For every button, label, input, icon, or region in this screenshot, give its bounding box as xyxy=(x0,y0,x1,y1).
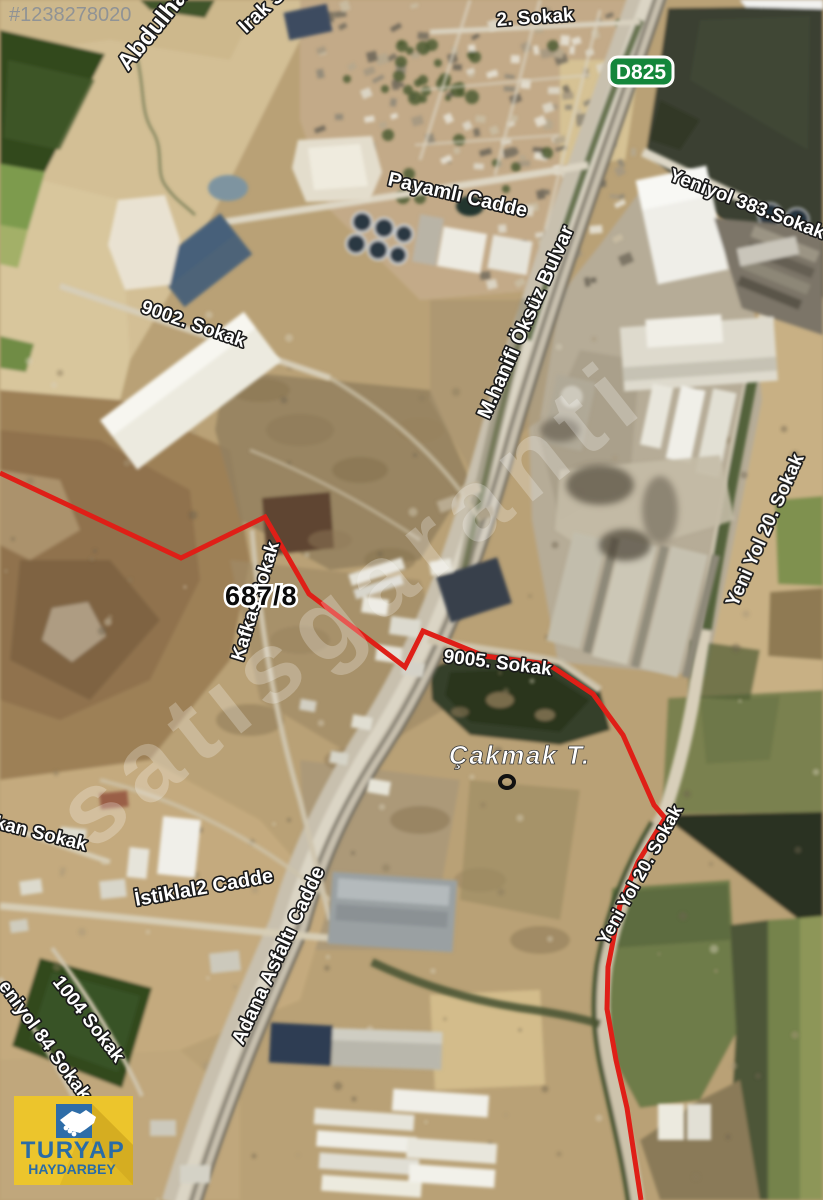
svg-text:687/8: 687/8 xyxy=(225,581,298,611)
svg-text:D825: D825 xyxy=(616,61,667,84)
svg-text:TURYAP: TURYAP xyxy=(21,1137,126,1164)
svg-text:HAYDARBEY: HAYDARBEY xyxy=(28,1161,116,1177)
svg-text:Çakmak T.: Çakmak T. xyxy=(449,740,591,770)
svg-text:#1238278020: #1238278020 xyxy=(9,4,131,26)
